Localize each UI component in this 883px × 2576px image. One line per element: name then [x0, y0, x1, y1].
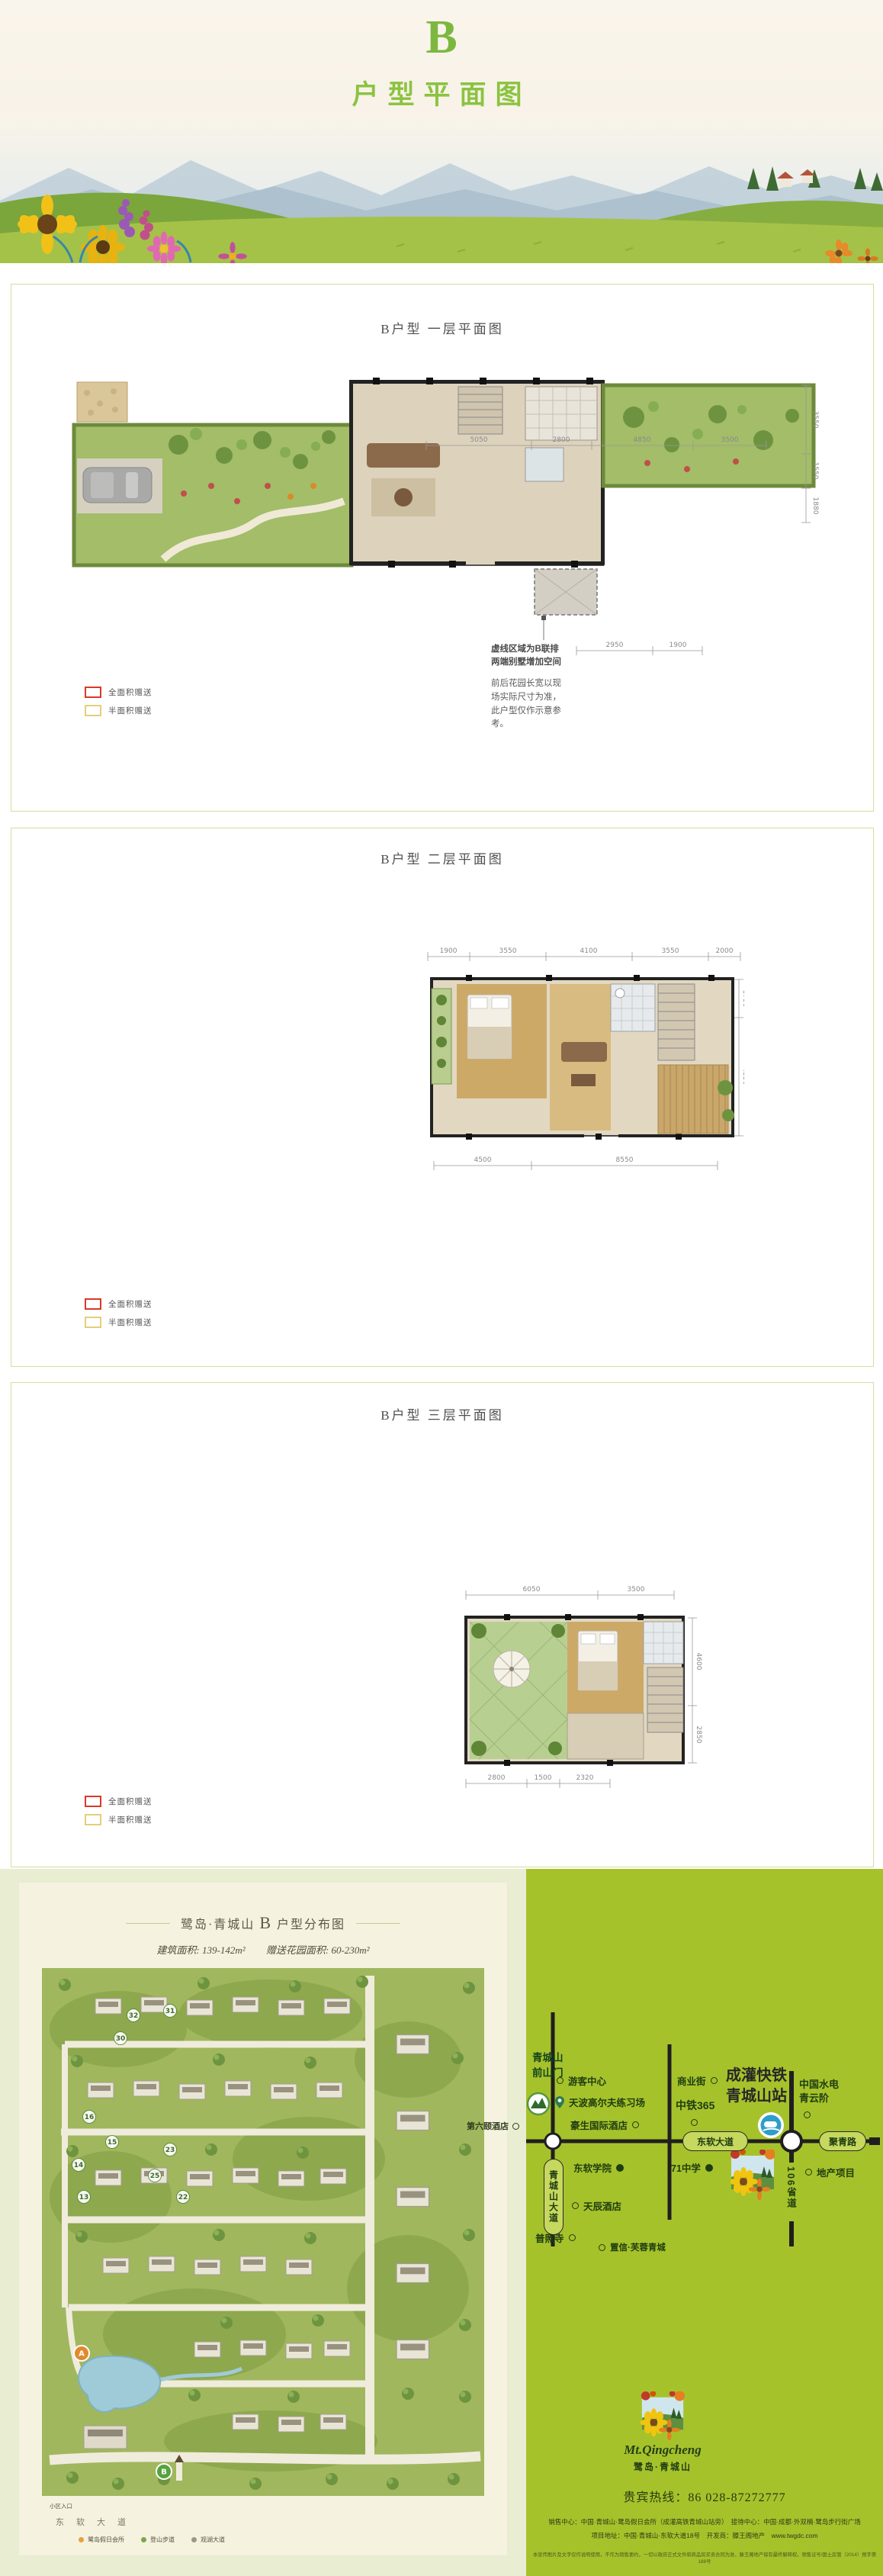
trail-dot-icon — [141, 2537, 146, 2542]
bed-icon — [467, 995, 512, 1059]
ring-marker-icon — [804, 2111, 811, 2118]
address-line-1: 销售中心：中国·青城山·鹭岛假日会所（成灌高铁青城山站旁） 接待中心：中国·成都… — [529, 2516, 880, 2528]
flower-logo — [641, 2391, 685, 2440]
meadow-banner-illustration — [0, 113, 883, 263]
plan-legend: 全面积赠送 半面积赠送 — [85, 687, 153, 723]
bed-icon — [578, 1631, 618, 1690]
svg-text:14: 14 — [74, 2162, 84, 2169]
poi-zhixin: 置信·芙蓉青城 — [599, 2241, 666, 2253]
title-rule-left — [126, 1923, 170, 1924]
poi-visitor-center: 游客中心 — [557, 2073, 606, 2088]
plan-legend: 全面积赠送 半面积赠送 — [85, 1298, 153, 1335]
avenue-dot-icon — [191, 2537, 197, 2542]
road-label-s106: 106省道 — [784, 2166, 798, 2209]
patio-umbrella-icon — [493, 1651, 530, 1687]
marker-a: A — [74, 2346, 89, 2361]
dongruan-avenue-label: 东软大道 — [56, 2516, 138, 2528]
ring-marker-icon — [569, 2234, 576, 2241]
logo-english: Mt.Qingcheng — [548, 2443, 777, 2458]
clubhouse-dot-icon — [79, 2537, 84, 2542]
section-floor1: B户型 一层平面图 — [11, 284, 874, 812]
vip-hotline: 贵宾热线：86 028-87272777 — [526, 2487, 883, 2505]
floorplan2-house — [430, 975, 734, 1140]
svg-text:1900: 1900 — [440, 947, 458, 955]
poi-dongruan-college: 东软学院 — [573, 2160, 624, 2175]
living-room-furniture — [367, 443, 440, 516]
half-area-label: 半面积赠送 — [108, 1814, 153, 1825]
svg-text:23: 23 — [165, 2147, 175, 2154]
svg-text:4100: 4100 — [580, 947, 598, 955]
stairs — [647, 1667, 683, 1732]
stairs — [658, 984, 695, 1060]
svg-text:31: 31 — [165, 2008, 175, 2015]
section-floor2-title: B户型 二层平面图 — [11, 848, 873, 867]
poi-tianchen-hotel: 天辰酒店 — [572, 2198, 621, 2213]
svg-text:1550: 1550 — [811, 462, 819, 480]
svg-text:3550: 3550 — [811, 411, 819, 429]
svg-text:1880: 1880 — [811, 497, 819, 515]
svg-text:15: 15 — [108, 2139, 117, 2147]
section-floor1-title: B户型 一层平面图 — [11, 318, 873, 337]
filled-dot-marker-icon — [705, 2164, 713, 2172]
ring-marker-icon — [599, 2244, 605, 2251]
floorplan3-house — [464, 1614, 685, 1766]
sitemap-areas: 建筑面积: 139-142m² 赠送花园面积: 60-230m² — [19, 1942, 507, 1957]
brochure-page: B 户型平面图 — [0, 0, 883, 2576]
mountain-gate-icon — [526, 2092, 551, 2116]
poi-biz-street: 商业街 — [677, 2073, 718, 2088]
floorplan-3-drawing: 6050 3500 — [432, 1576, 718, 1801]
floorplan1-house — [349, 378, 605, 568]
road-label-qingchengshan: 青城山大道 — [544, 2159, 564, 2235]
half-area-label: 半面积赠送 — [108, 1317, 153, 1328]
disclaimer: 本宣传图片及文字仅作说明使用，不作为销售要约，一切以政府正式文件和商品房买卖合同… — [529, 2551, 880, 2565]
full-area-swatch — [85, 1298, 101, 1310]
rear-balcony — [567, 1713, 644, 1759]
dashed-area-note: 虚线区域为B联排 两端别墅增加空间 — [491, 643, 561, 670]
road-label-dongruan: 东软大道 — [682, 2131, 748, 2151]
svg-text:1500: 1500 — [535, 1774, 552, 1782]
address-line-2: 项目地址：中国·青城山·东软大道18号 开发商：滕王阁地产 www.twgdc.… — [529, 2529, 880, 2542]
poi-school-71: 71中学 — [671, 2160, 713, 2175]
svg-text:8550: 8550 — [616, 1156, 634, 1164]
roof-terrace — [470, 1622, 567, 1759]
location-diagram-panel: 东软大道 聚青路 青城山大道 106省道 青城山前山门 游客中心 天波高尔夫练习… — [526, 1869, 883, 2576]
half-area-swatch — [85, 1317, 101, 1328]
wood-deck — [658, 1065, 728, 1134]
train-station-icon — [757, 2111, 785, 2139]
bathroom — [525, 448, 564, 481]
svg-text:13: 13 — [79, 2194, 89, 2201]
ring-marker-icon — [557, 2077, 564, 2084]
svg-text:3550: 3550 — [662, 947, 679, 955]
bathroom — [644, 1622, 683, 1664]
floorplan-2-drawing: 1900 3550 4100 3550 2000 — [420, 935, 744, 1179]
svg-text:32: 32 — [129, 2012, 139, 2020]
car-icon — [83, 468, 152, 503]
page-title: 户型平面图 — [0, 73, 883, 112]
section-floor3: B户型 三层平面图 6050 3500 — [11, 1382, 874, 1867]
poi-howard-hotel: 豪生国际酒店 — [570, 2118, 639, 2132]
poi-hydro: 中国水电青云阶 — [799, 2078, 839, 2105]
road-label-juqing: 聚青路 — [819, 2131, 866, 2151]
full-area-label: 全面积赠送 — [108, 1796, 153, 1807]
road-junction-icon — [545, 2134, 560, 2149]
half-area-swatch — [85, 705, 101, 716]
sitemap-card: 鹭岛·青城山B户型分布图 建筑面积: 139-142m² 赠送花园面积: 60-… — [19, 1883, 507, 2555]
filled-dot-marker-icon — [616, 2164, 624, 2172]
title-rule-right — [356, 1923, 400, 1924]
svg-text:16: 16 — [85, 2114, 95, 2121]
full-area-swatch — [85, 687, 101, 698]
clubhouse — [84, 2426, 127, 2449]
svg-text:2950: 2950 — [606, 642, 624, 649]
rail-station-label: 成灌快铁青城山站 — [726, 2066, 787, 2107]
ring-marker-icon — [711, 2077, 718, 2084]
plan-letter: B — [0, 11, 883, 65]
ring-marker-icon — [632, 2121, 639, 2128]
svg-text:2800: 2800 — [553, 436, 570, 444]
sitemap-legend: 鹭岛假日会所 登山步道 观湖大道 — [79, 2536, 225, 2544]
svg-text:2850: 2850 — [695, 1726, 702, 1744]
floorplan1-right-garden — [603, 385, 814, 486]
marker-b: B — [156, 2464, 172, 2479]
plan-legend: 全面积赠送 半面积赠送 — [85, 1796, 153, 1832]
logo-chinese: 鹭岛·青城山 — [548, 2460, 777, 2473]
svg-text:1750: 1750 — [741, 990, 744, 1008]
project-flower-marker — [730, 2150, 775, 2200]
svg-text:6050: 6050 — [523, 1586, 541, 1594]
road-end-cap — [869, 2137, 880, 2145]
svg-text:25: 25 — [150, 2172, 160, 2180]
ring-marker-icon — [512, 2123, 519, 2130]
header: B 户型平面图 — [0, 0, 883, 263]
built-area-label: 建筑面积: 139-142m² — [156, 1944, 245, 1956]
location-pin-icon — [555, 2096, 564, 2108]
floorplan-1-drawing: 5050 2800 4850 3500 2950 1900 3550 1550 … — [68, 370, 823, 664]
ring-marker-icon — [572, 2202, 579, 2209]
svg-text:4350: 4350 — [741, 1068, 744, 1085]
garden-area-label: 赠送花园面积: 60-230m² — [266, 1944, 370, 1956]
svg-text:A: A — [79, 2350, 85, 2359]
poi-zhongtie365: 中铁365 — [676, 2098, 714, 2113]
svg-text:5050: 5050 — [470, 436, 488, 444]
svg-text:3500: 3500 — [721, 436, 739, 444]
full-area-label: 全面积赠送 — [108, 687, 153, 698]
sitemap-title: 鹭岛·青城山B户型分布图 — [19, 1913, 507, 1933]
bathroom — [611, 984, 655, 1031]
stairs — [458, 387, 503, 434]
svg-text:1900: 1900 — [669, 642, 687, 649]
sitemap-panel: 鹭岛·青城山B户型分布图 建筑面积: 139-142m² 赠送花园面积: 60-… — [0, 1869, 526, 2576]
svg-text:3500: 3500 — [628, 1586, 645, 1594]
half-area-swatch — [85, 1814, 101, 1825]
garden-size-note: 前后花园长宽以现场实际尺寸为准，此户型仅作示意参考。 — [491, 677, 563, 732]
full-area-swatch — [85, 1796, 101, 1807]
kitchen — [525, 387, 597, 440]
ring-marker-icon — [691, 2119, 698, 2126]
svg-text:3550: 3550 — [499, 947, 517, 955]
svg-text:4850: 4850 — [634, 436, 651, 444]
section-floor3-title: B户型 三层平面图 — [11, 1404, 873, 1423]
poi-sixth-hotel: 第六颐酒店 — [467, 2120, 519, 2132]
community-site-map: 32 31 30 16 15 14 23 25 13 22 A B — [42, 1968, 484, 2496]
entrance-label: 小区入口 — [50, 2502, 72, 2510]
svg-text:4500: 4500 — [474, 1156, 492, 1164]
sitemap-legend-label: 观湖大道 — [201, 2536, 225, 2544]
svg-text:4600: 4600 — [695, 1653, 702, 1671]
floorplan1-left-garden — [74, 382, 352, 565]
svg-text:B: B — [161, 2468, 167, 2477]
section-floor2: B户型 二层平面图 1900 3550 4100 3550 2000 — [11, 828, 874, 1367]
sitemap-legend-label: 登山步道 — [150, 2536, 175, 2544]
poi-golf: 天波高尔夫练习场 — [555, 2095, 645, 2109]
svg-text:2000: 2000 — [716, 947, 734, 955]
sitemap-legend-label: 鹭岛假日会所 — [88, 2536, 124, 2544]
full-area-label: 全面积赠送 — [108, 1298, 153, 1310]
poi-estate-project: 地产项目 — [805, 2165, 855, 2179]
ring-marker-icon — [805, 2169, 812, 2176]
half-area-label: 半面积赠送 — [108, 705, 153, 716]
svg-text:22: 22 — [178, 2194, 188, 2201]
floorplan1-dashed-terrace — [535, 569, 597, 640]
svg-text:2800: 2800 — [488, 1774, 506, 1782]
svg-text:30: 30 — [116, 2035, 126, 2043]
svg-text:2320: 2320 — [576, 1774, 594, 1782]
